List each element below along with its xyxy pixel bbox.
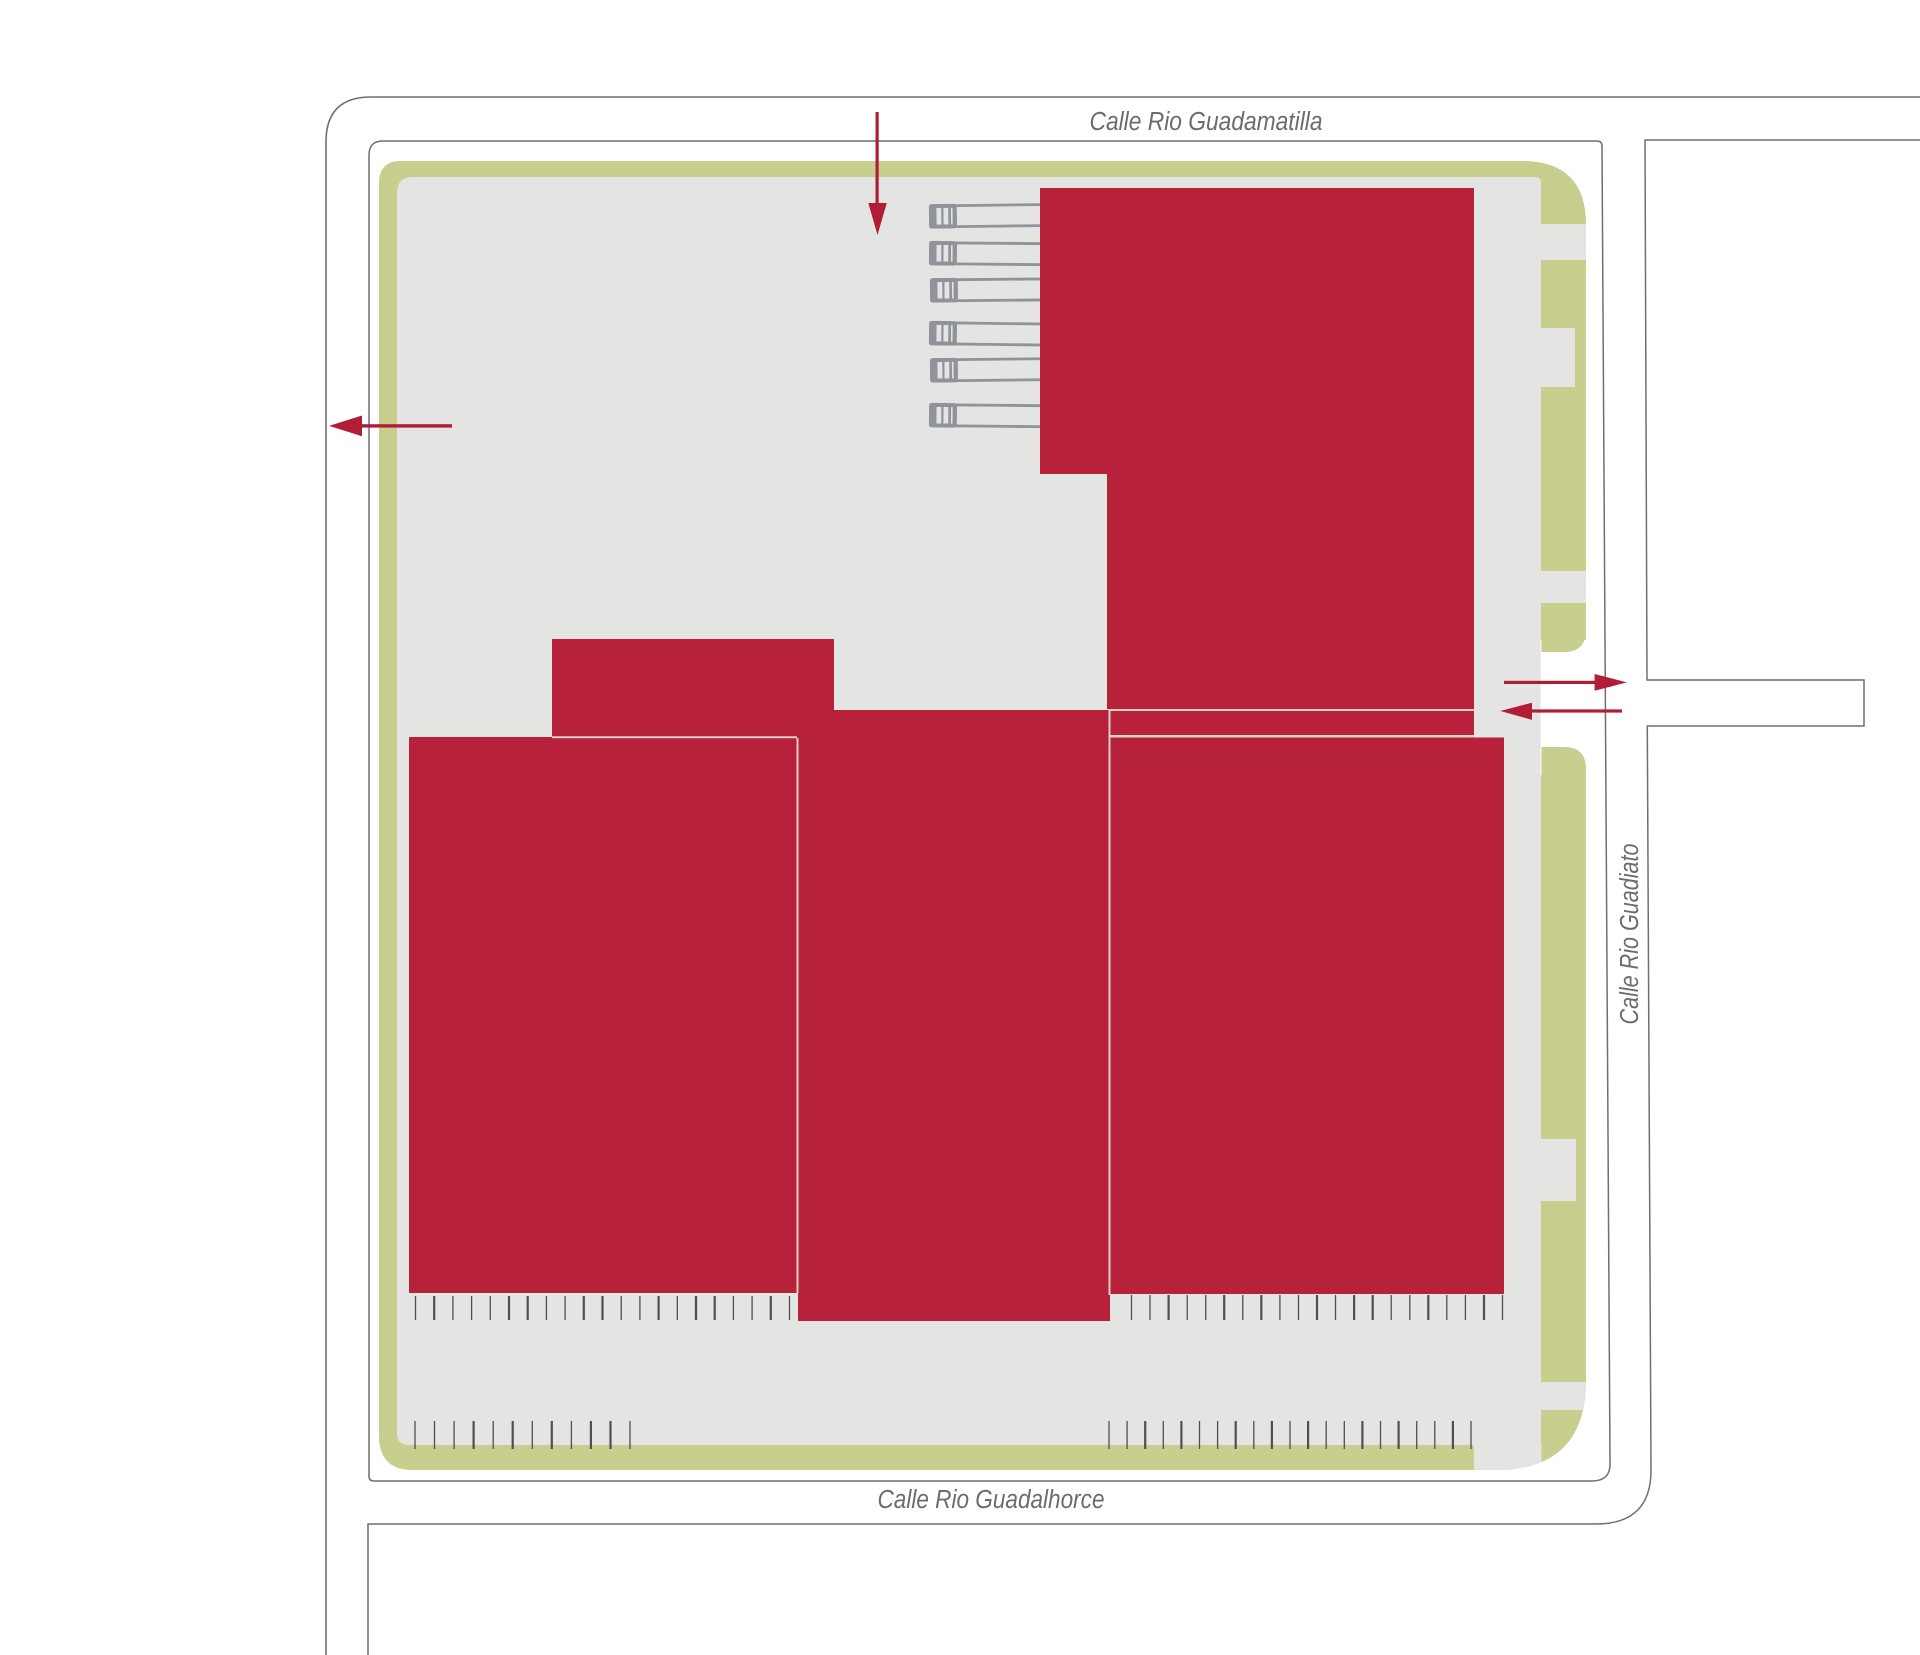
svg-text:Calle Rio Guadiato: Calle Rio Guadiato <box>1616 844 1644 1025</box>
svg-text:Calle Rio Guadamatilla: Calle Rio Guadamatilla <box>1090 108 1323 136</box>
svg-text:Calle Rio Guadalhorce: Calle Rio Guadalhorce <box>878 1486 1105 1514</box>
